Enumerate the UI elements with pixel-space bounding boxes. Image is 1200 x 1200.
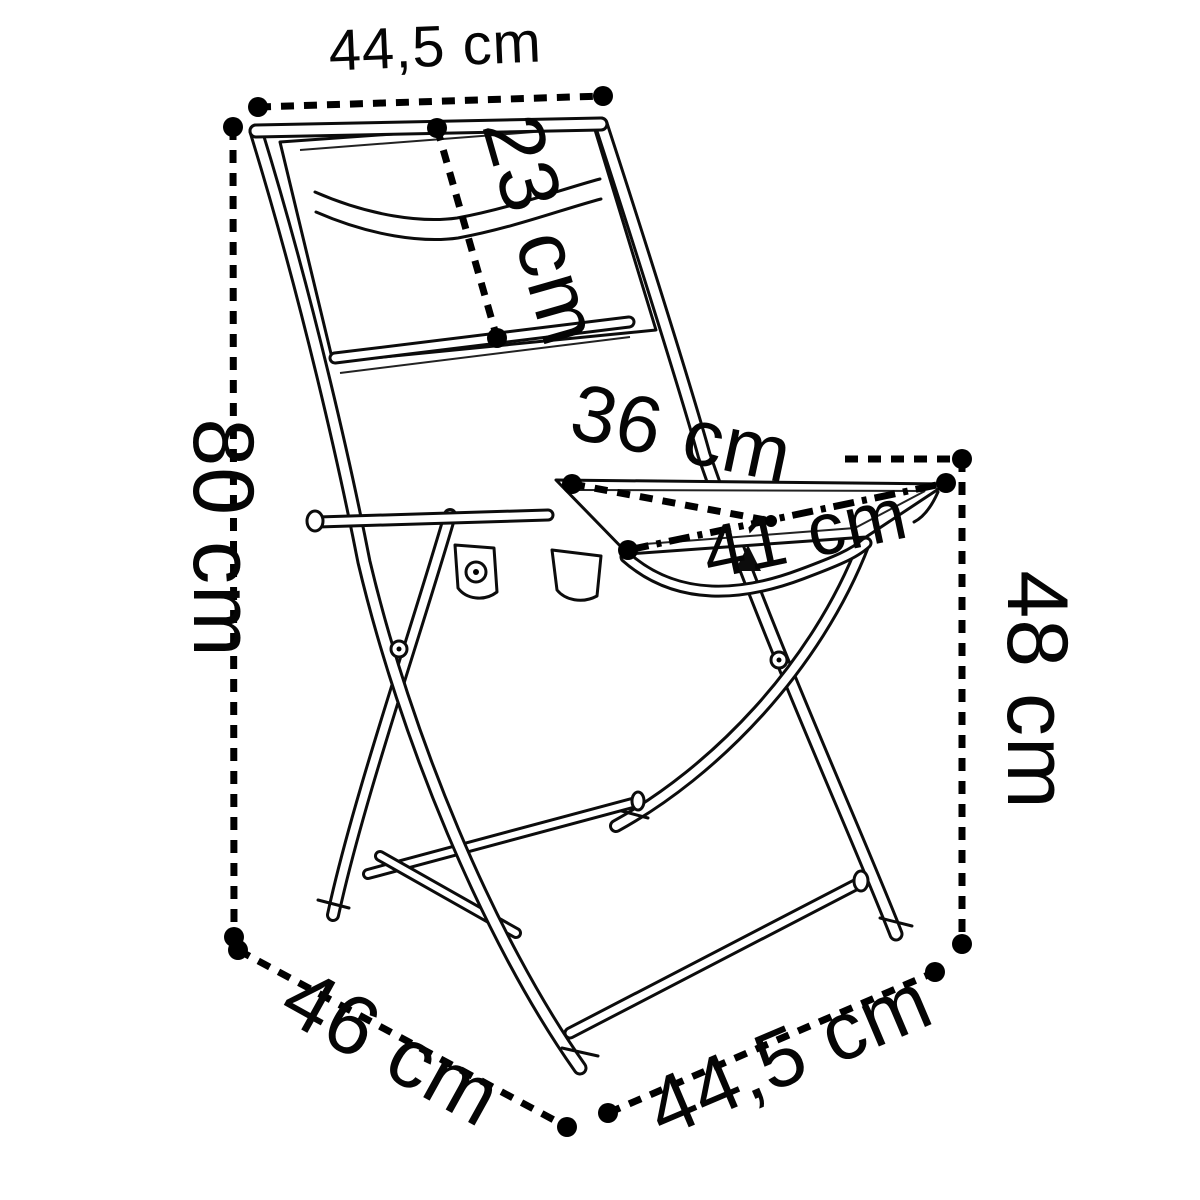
dimension-label-overall-width: 44,5 cm	[634, 954, 944, 1154]
bracket-roller-pin	[473, 569, 479, 575]
dimension-overall-height: 80 cm	[175, 117, 271, 947]
dimension-diagram-canvas: 44,5 cm 23 cm 80 cm 36 cm 41 cm 48 cm 46…	[0, 0, 1200, 1200]
front-stretcher-end-cap	[854, 871, 868, 891]
seat-rear-tube	[307, 511, 548, 531]
dimension-label-overall-depth: 46 cm	[267, 949, 517, 1145]
right-pivot-bolt-center	[777, 658, 782, 663]
seat-rear-tube-peg	[307, 511, 323, 531]
dimension-label-overall-height: 80 cm	[175, 418, 271, 657]
folding-chair-diagram: 44,5 cm 23 cm 80 cm 36 cm 41 cm 48 cm 46…	[0, 0, 1200, 1200]
rear-stretcher-end-cap	[632, 792, 644, 810]
dimension-label-backrest-top-width: 44,5 cm	[327, 9, 543, 83]
rear-stretcher-bar	[368, 792, 644, 874]
dimension-backrest-top-width: 44,5 cm	[248, 9, 613, 117]
dimension-label-seat-height: 48 cm	[989, 570, 1085, 809]
left-pivot-bolt-center	[397, 647, 402, 652]
